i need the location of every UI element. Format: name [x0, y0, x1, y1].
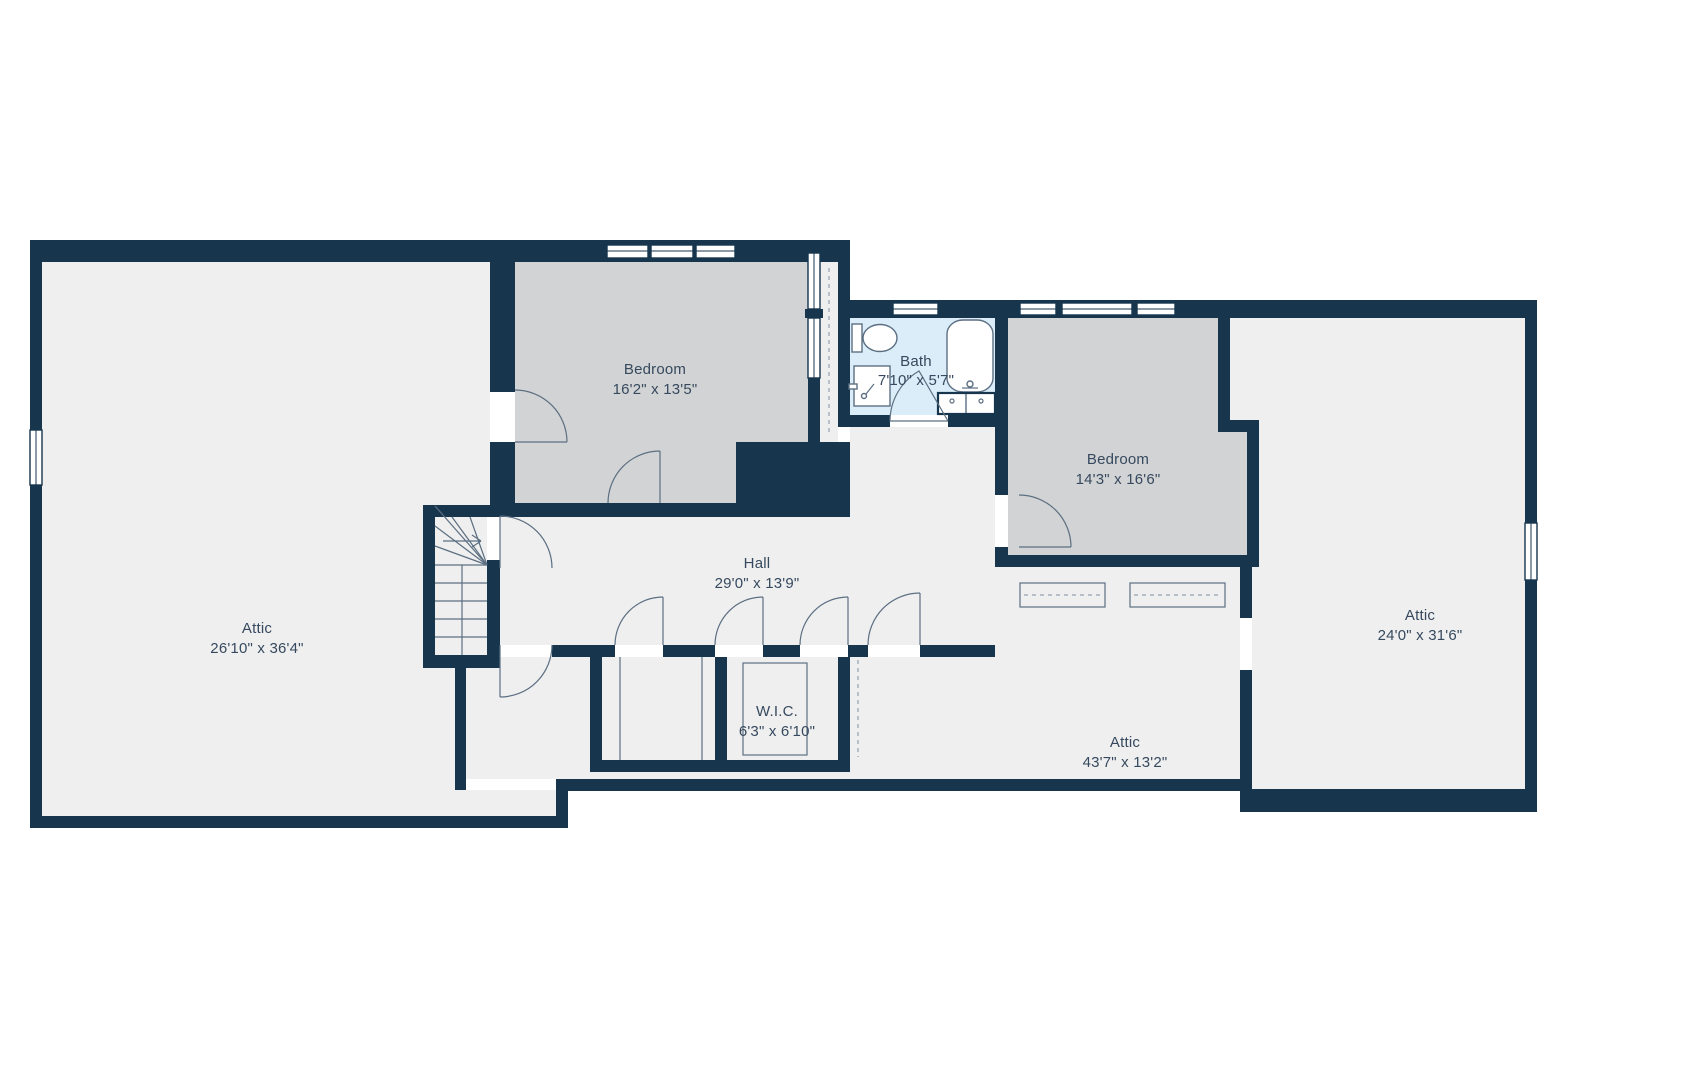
svg-text:W.I.C.: W.I.C.: [756, 703, 798, 720]
svg-text:Attic: Attic: [242, 620, 272, 637]
toilet-icon: [852, 324, 897, 352]
stairwell-floor: [435, 517, 487, 655]
svg-text:Bedroom: Bedroom: [624, 361, 686, 378]
svg-text:29'0" x 13'9": 29'0" x 13'9": [715, 575, 800, 592]
svg-text:6'3" x 6'10": 6'3" x 6'10": [739, 723, 815, 740]
window-bath: [893, 303, 938, 315]
window-bedroom-left-top: [607, 245, 735, 258]
window-bedroom-left-side: [805, 253, 823, 378]
attic-bottom-floor-left: [466, 657, 590, 779]
svg-text:Bedroom: Bedroom: [1087, 451, 1149, 468]
bedroom-right-floor: [1008, 318, 1247, 555]
hall-floor-right: [850, 427, 995, 645]
svg-text:Hall: Hall: [744, 555, 771, 572]
window-bedroom-right-top: [1020, 303, 1175, 315]
svg-text:24'0" x 31'6": 24'0" x 31'6": [1378, 627, 1463, 644]
svg-text:43'7" x 13'2": 43'7" x 13'2": [1083, 754, 1168, 771]
vanity-sink-icon: [938, 393, 995, 414]
floor-plan-page: Attic 26'10" x 36'4" Bedroom 16'2" x 13'…: [0, 0, 1703, 1080]
closet-floor: [602, 657, 715, 760]
void-block: [736, 442, 850, 517]
svg-text:Attic: Attic: [1405, 607, 1435, 624]
window-attic-right: [1525, 523, 1537, 580]
floor-plan: Attic 26'10" x 36'4" Bedroom 16'2" x 13'…: [0, 0, 1703, 1080]
svg-text:Bath: Bath: [900, 353, 932, 370]
svg-text:14'3" x 16'6": 14'3" x 16'6": [1076, 471, 1161, 488]
attic-right-floor: [1230, 318, 1525, 789]
attic-bottom-floor-mid: [850, 657, 995, 779]
attic-bottom-floor-under-closets: [590, 772, 850, 779]
svg-text:7'10" x 5'7": 7'10" x 5'7": [878, 372, 954, 389]
svg-text:16'2" x 13'5": 16'2" x 13'5": [613, 381, 698, 398]
window-attic-left: [30, 430, 42, 485]
svg-text:26'10" x 36'4": 26'10" x 36'4": [210, 640, 303, 657]
svg-text:Attic: Attic: [1110, 734, 1140, 751]
